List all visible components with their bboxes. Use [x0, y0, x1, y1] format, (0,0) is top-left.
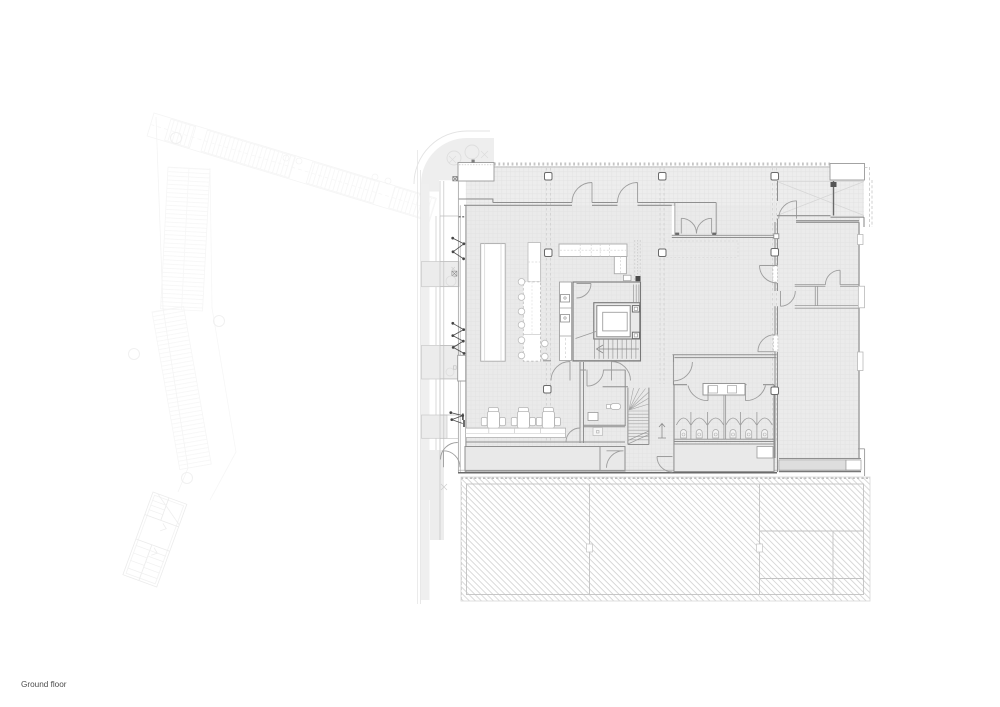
svg-text:Ground floor: Ground floor: [21, 680, 67, 689]
